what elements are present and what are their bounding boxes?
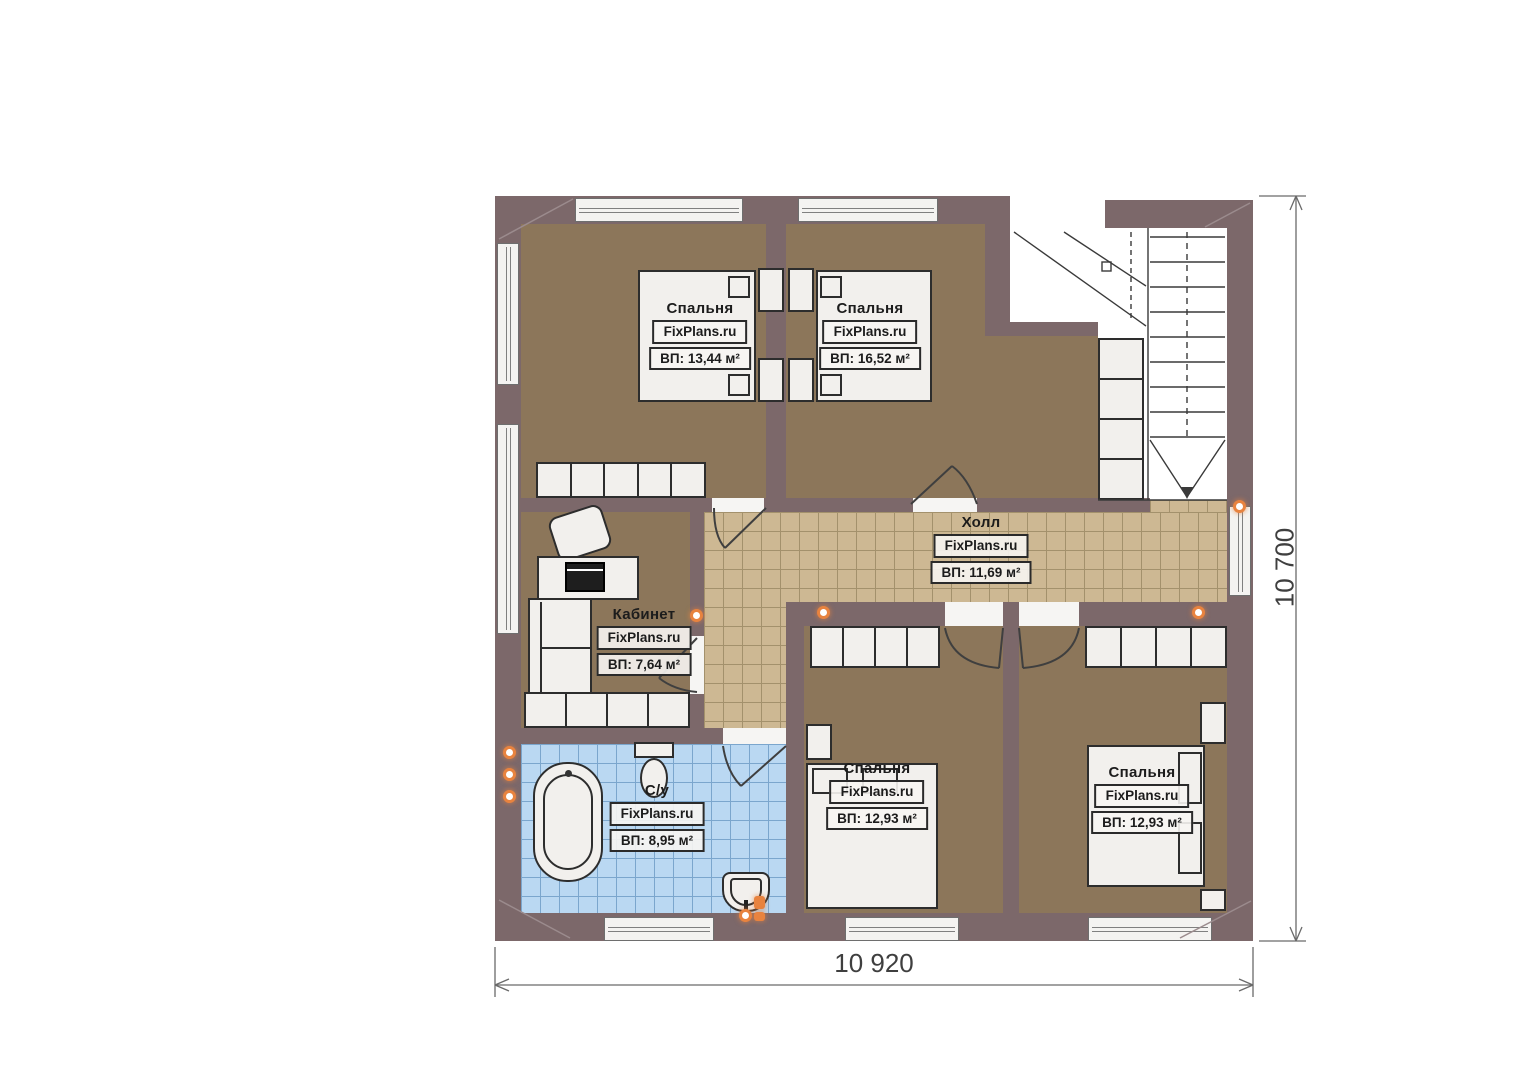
light-dot-bedroom3-wall xyxy=(817,606,830,619)
wall-bedroom2-bottom-right xyxy=(977,498,1150,512)
room-area: ВП: 13,44 м² xyxy=(649,347,751,371)
room-name: Холл xyxy=(962,514,1001,531)
watermark: FixPlans.ru xyxy=(597,626,692,650)
riser-dot-3 xyxy=(503,790,516,803)
stair-direction-arrow xyxy=(1181,487,1193,499)
office-label: Кабинет FixPlans.ru ВП: 7,64 м² xyxy=(597,606,692,676)
window-bottom-3 xyxy=(1088,917,1212,941)
watermark: FixPlans.ru xyxy=(653,320,748,344)
stair-closet xyxy=(1098,338,1144,500)
dimension-height: 10 700 xyxy=(1270,513,1301,623)
wall-bedroom1-bottom-pillar xyxy=(764,498,786,512)
window-left-2 xyxy=(497,424,519,634)
office-sofa xyxy=(528,598,592,696)
bathtub-faucet xyxy=(565,770,572,777)
watermark: FixPlans.ru xyxy=(1095,784,1190,808)
bedroom1-label: Спальня FixPlans.ru ВП: 13,44 м² xyxy=(649,300,751,370)
window-left-1 xyxy=(497,243,519,385)
bedroom2-nightstand-2 xyxy=(788,358,814,402)
room-name: Спальня xyxy=(844,760,911,777)
bathroom-door-threshold xyxy=(723,728,786,744)
toilet-tank xyxy=(634,742,674,758)
bedroom3-door-threshold xyxy=(945,602,1003,626)
bedroom2-nightstand-1 xyxy=(788,268,814,312)
room-area: ВП: 8,95 м² xyxy=(610,829,704,853)
riser-dot-bottom xyxy=(739,909,752,922)
bedroom2-pillow-2 xyxy=(820,374,842,396)
bedroom3-label: Спальня FixPlans.ru ВП: 12,93 м² xyxy=(826,760,928,830)
bedroom1-wardrobe xyxy=(536,462,706,498)
room-name: Кабинет xyxy=(613,606,676,623)
room-area: ВП: 7,64 м² xyxy=(597,653,691,677)
watermark: FixPlans.ru xyxy=(934,534,1029,558)
bedroom2-door-threshold xyxy=(913,498,977,512)
bedroom4-nightstand-2 xyxy=(1200,889,1226,911)
valve-square-1 xyxy=(754,896,765,909)
wall-notch-horizontal xyxy=(985,322,1098,336)
bedroom1-nightstand-2 xyxy=(758,358,784,402)
bedroom1-pillow-1 xyxy=(728,276,750,298)
bedroom4-wardrobe xyxy=(1085,626,1227,668)
room-area: ВП: 12,93 м² xyxy=(826,807,928,831)
wall-bedroom1-bottom xyxy=(521,498,712,512)
floor-plan-canvas: Спальня FixPlans.ru ВП: 13,44 м² Спальня… xyxy=(0,0,1528,1080)
bedroom3-nightstand xyxy=(806,724,832,760)
wall-bedroom3-bedroom4-divider xyxy=(1003,602,1019,913)
watermark: FixPlans.ru xyxy=(830,780,925,804)
office-wardrobe xyxy=(524,692,690,728)
room-area: ВП: 12,93 м² xyxy=(1091,811,1193,835)
hall-label: Холл FixPlans.ru ВП: 11,69 м² xyxy=(931,514,1032,584)
office-monitor xyxy=(565,562,605,592)
light-dot-right-wall xyxy=(1233,500,1246,513)
hall-floor-under-stairs xyxy=(1150,500,1227,512)
window-bottom-2 xyxy=(845,917,959,941)
hall-floor-arm xyxy=(704,512,786,744)
valve-square-2 xyxy=(754,912,765,921)
office-door-threshold xyxy=(690,636,704,694)
watermark: FixPlans.ru xyxy=(610,802,705,826)
riser-dot-2 xyxy=(503,768,516,781)
bedroom2-pillow-1 xyxy=(820,276,842,298)
window-bottom-1 xyxy=(604,917,714,941)
bedroom4-door-threshold xyxy=(1019,602,1079,626)
watermark: FixPlans.ru xyxy=(823,320,918,344)
window-top-1 xyxy=(575,198,743,222)
bedroom1-door-threshold xyxy=(712,498,764,512)
room-name: Спальня xyxy=(667,300,734,317)
light-dot-bedroom4-wall xyxy=(1192,606,1205,619)
wall-bedroom3-left xyxy=(786,602,804,913)
room-area: ВП: 11,69 м² xyxy=(931,561,1032,585)
room-area: ВП: 16,52 м² xyxy=(819,347,921,371)
wall-bathroom-top xyxy=(521,728,723,744)
riser-dot-1 xyxy=(503,746,516,759)
room-name: С/у xyxy=(645,782,669,799)
window-top-2 xyxy=(798,198,938,222)
wall-bedroom2-bottom-left xyxy=(786,498,913,512)
bedroom3-wardrobe xyxy=(810,626,940,668)
dimension-width: 10 920 xyxy=(804,948,944,979)
wall-notch-vertical xyxy=(985,224,1010,336)
bedroom1-pillow-2 xyxy=(728,374,750,396)
room-name: Спальня xyxy=(837,300,904,317)
bathtub-basin xyxy=(543,774,593,870)
window-right-1 xyxy=(1229,506,1251,596)
bedroom1-nightstand-1 xyxy=(758,268,784,312)
bedroom2-label: Спальня FixPlans.ru ВП: 16,52 м² xyxy=(819,300,921,370)
bedroom4-nightstand-1 xyxy=(1200,702,1226,744)
light-dot-office-wall xyxy=(690,609,703,622)
bedroom4-label: Спальня FixPlans.ru ВП: 12,93 м² xyxy=(1091,764,1193,834)
room-name: Спальня xyxy=(1109,764,1176,781)
bathroom-label: С/у FixPlans.ru ВП: 8,95 м² xyxy=(610,782,705,852)
